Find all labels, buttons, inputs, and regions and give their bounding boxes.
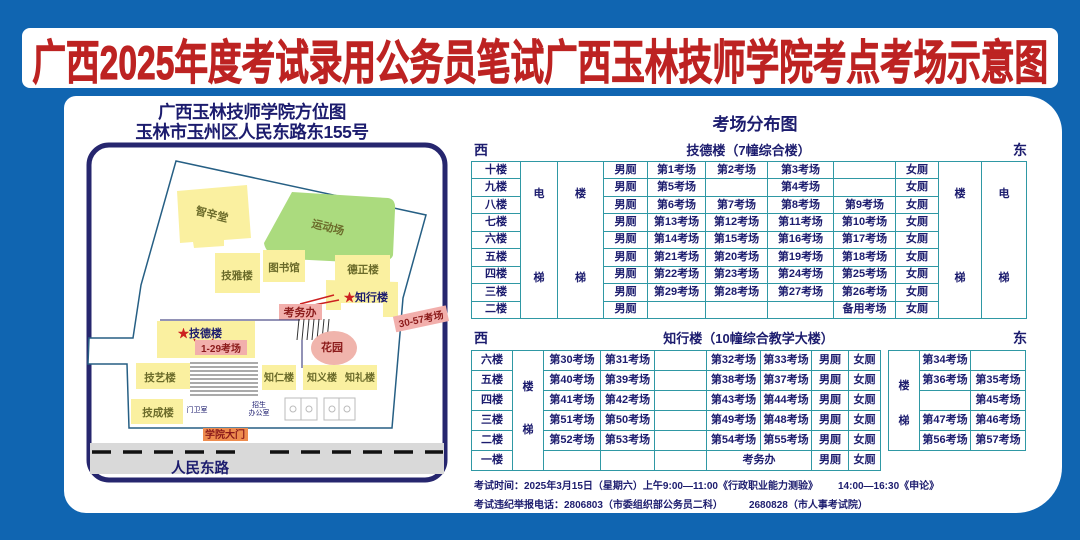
svg-text:1-29考场: 1-29考场 (201, 342, 241, 355)
svg-text:技成楼: 技成楼 (142, 406, 174, 419)
svg-text:★知行楼: ★知行楼 (344, 290, 388, 304)
svg-text:门卫室: 门卫室 (187, 405, 208, 414)
svg-text:图书馆: 图书馆 (268, 261, 300, 274)
svg-text:学院大门: 学院大门 (205, 428, 245, 441)
svg-text:★技德楼: ★技德楼 (178, 326, 222, 340)
svg-text:办公室: 办公室 (249, 408, 270, 417)
svg-text:德正楼: 德正楼 (346, 263, 379, 276)
svg-text:知礼楼: 知礼楼 (344, 371, 375, 384)
svg-text:人民东路: 人民东路 (171, 459, 229, 477)
svg-text:知仁楼: 知仁楼 (263, 371, 294, 384)
svg-text:花园: 花园 (321, 340, 343, 354)
svg-text:技艺楼: 技艺楼 (144, 371, 176, 384)
svg-text:知义楼: 知义楼 (306, 371, 337, 384)
svg-text:考务办: 考务办 (284, 305, 317, 319)
svg-text:技雅楼: 技雅楼 (221, 269, 253, 282)
svg-text:招生: 招生 (252, 400, 266, 409)
